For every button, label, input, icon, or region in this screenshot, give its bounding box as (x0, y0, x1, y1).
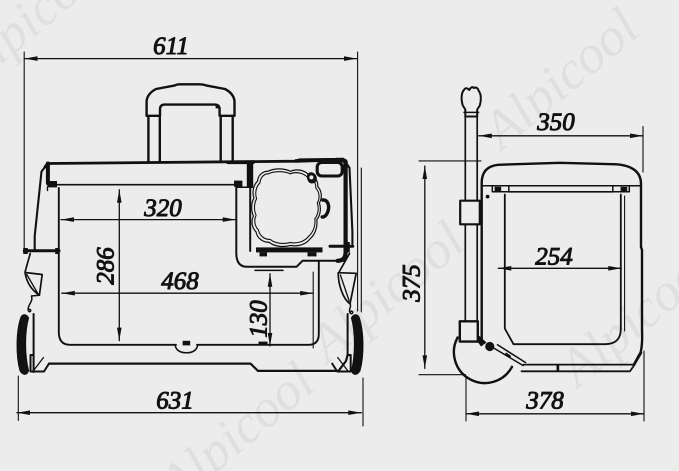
svg-text:631: 631 (156, 387, 194, 414)
svg-text:468: 468 (161, 268, 199, 295)
svg-text:350: 350 (536, 109, 575, 136)
svg-text:254: 254 (535, 243, 573, 270)
svg-text:130: 130 (246, 300, 273, 338)
svg-text:375: 375 (399, 264, 426, 303)
svg-text:286: 286 (93, 247, 120, 285)
svg-text:611: 611 (153, 33, 189, 60)
svg-text:320: 320 (143, 195, 182, 222)
svg-text:378: 378 (525, 387, 564, 414)
